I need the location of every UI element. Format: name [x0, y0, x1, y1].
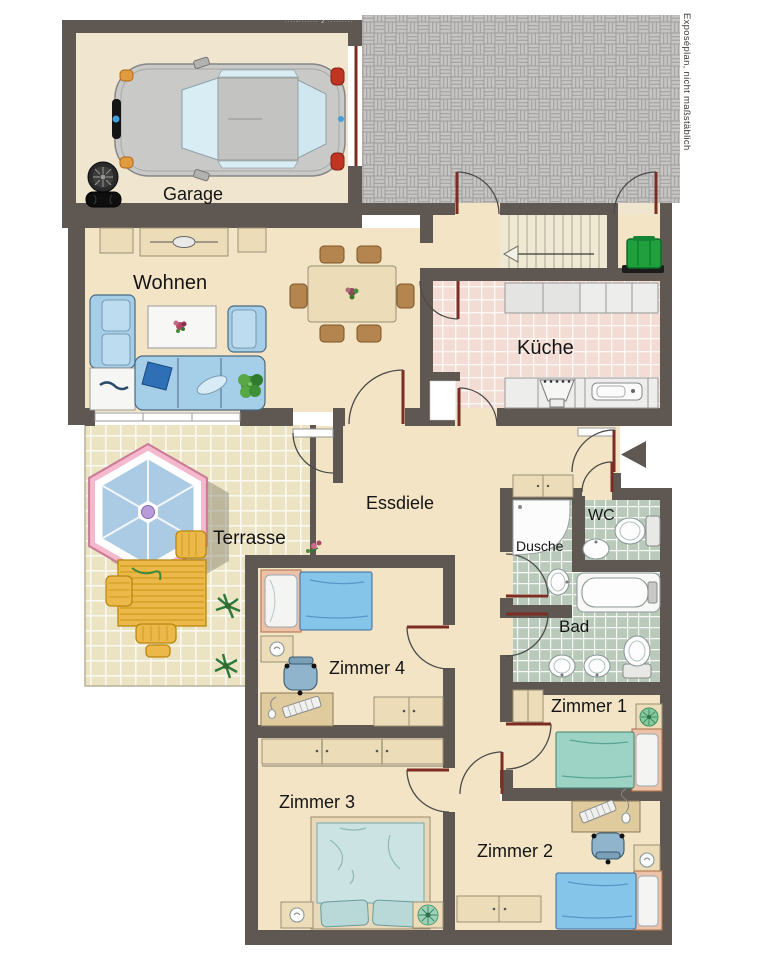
window-wohnen — [95, 413, 240, 421]
shaft — [430, 381, 456, 420]
indicator — [120, 70, 133, 81]
bed-blanket — [556, 873, 636, 929]
entrance-arrow-icon — [621, 441, 646, 468]
dining-chair — [397, 284, 414, 308]
bed-blanket — [317, 823, 424, 903]
bed-pillow — [265, 575, 297, 627]
green-bin-icon — [622, 236, 664, 273]
scale-disclaimer: Exposéplan, nicht maßstäblich — [681, 13, 692, 151]
dining-chair — [290, 284, 307, 308]
garden-stool — [146, 645, 170, 657]
tire-stack-icon — [86, 162, 121, 207]
courtyard-pavers — [362, 15, 680, 203]
mouse-icon — [622, 813, 630, 823]
hall-cabinet — [513, 475, 573, 497]
lamp-icon — [270, 642, 284, 656]
bed-pillow — [638, 876, 658, 926]
dining-chair — [357, 325, 381, 342]
lamp-icon — [290, 908, 304, 922]
taillight — [331, 68, 344, 85]
bed-blanket — [556, 732, 634, 788]
dining-chair — [320, 325, 344, 342]
dining-chair — [320, 246, 344, 263]
terrace-door-leaf — [293, 429, 333, 437]
garden-chair — [176, 531, 206, 558]
mouse-icon — [269, 710, 276, 719]
garden-chair — [106, 576, 132, 606]
sideboard — [100, 228, 133, 253]
car-icon — [112, 57, 345, 182]
plant-icon — [640, 708, 658, 726]
corridor-floor — [455, 555, 500, 801]
indicator — [120, 157, 133, 168]
watermark: ····-······· 2 ········· — [276, 19, 362, 25]
essdiele-floor — [316, 426, 500, 555]
garden-bench — [136, 624, 176, 643]
bed-pillow — [636, 734, 658, 786]
lamp-icon — [640, 853, 654, 867]
bed-pillow — [320, 900, 368, 927]
dining-chair — [357, 246, 381, 263]
side-table — [90, 368, 135, 410]
floor-plan-drawing — [0, 0, 760, 960]
sideboard — [238, 228, 266, 252]
floor-plan: Garage Wohnen Küche Essdiele Terrasse Du… — [0, 0, 760, 960]
wardrobe — [262, 739, 443, 764]
taillight — [331, 153, 344, 170]
entrance-sidelight — [578, 428, 615, 436]
plant-icon — [418, 905, 438, 925]
